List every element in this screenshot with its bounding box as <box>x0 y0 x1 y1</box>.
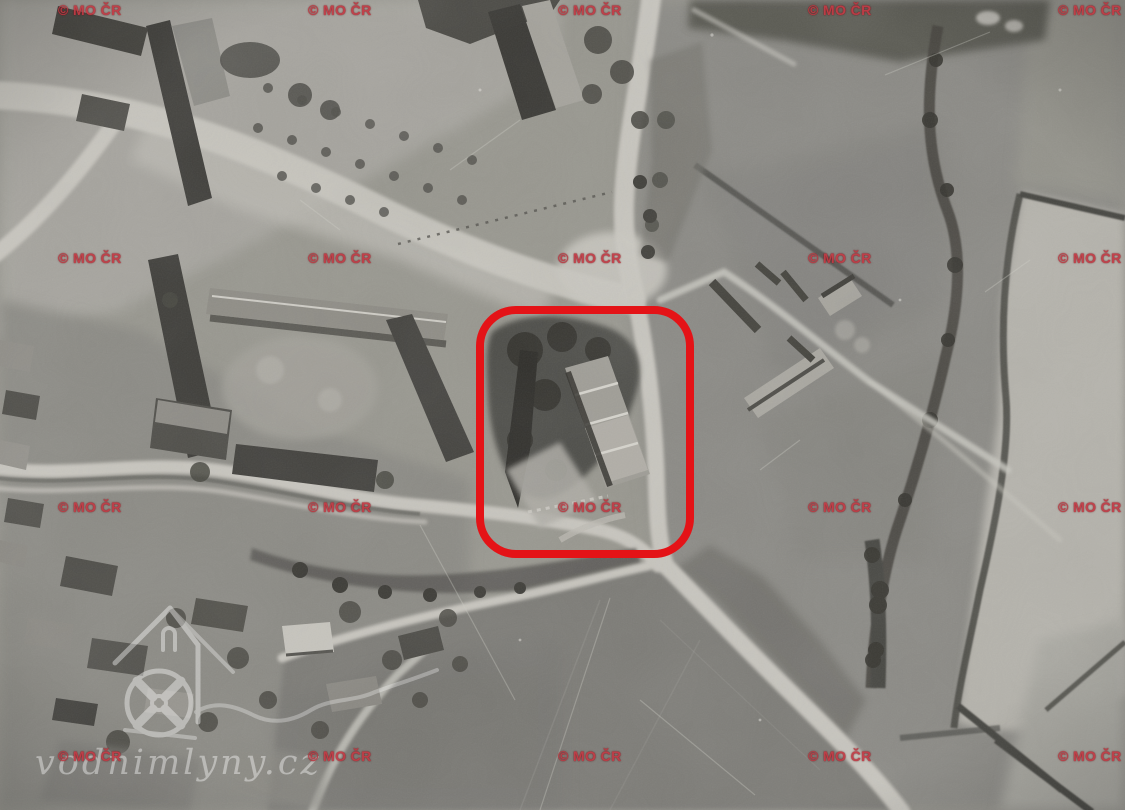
watermill-house-icon <box>85 580 465 765</box>
logo-text: vodnimlyny.cz <box>35 743 465 783</box>
vodnimlyny-logo: vodnimlyny.cz <box>85 580 465 795</box>
aerial-photo: vodnimlyny.cz © MO ČR© MO ČR© MO ČR© MO … <box>0 0 1125 810</box>
